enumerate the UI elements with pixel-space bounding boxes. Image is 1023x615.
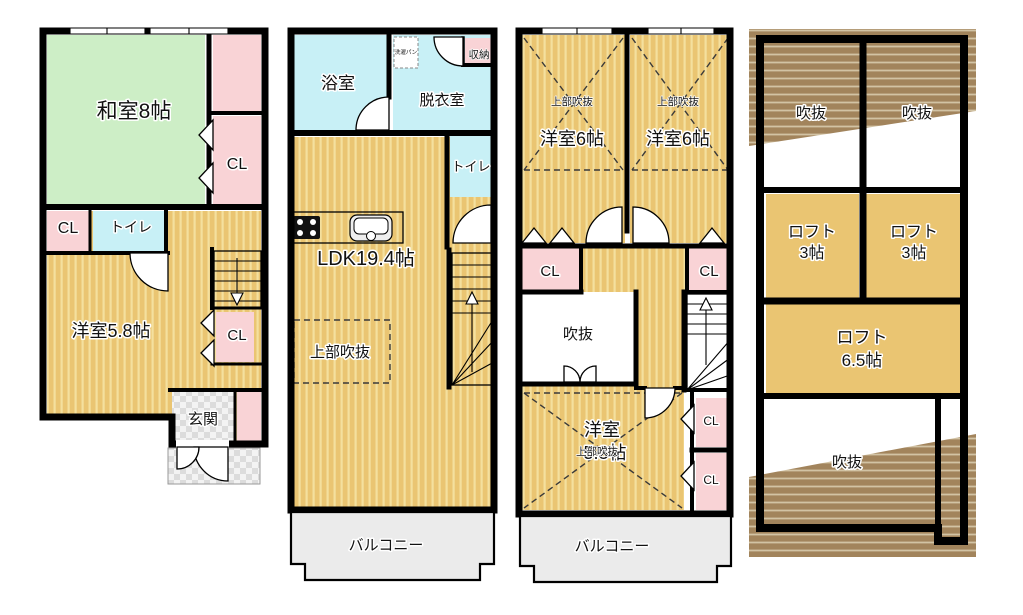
label-open-ceiling-2f: 上部吹抜	[310, 344, 370, 361]
entrance-side-closet	[237, 392, 261, 441]
floor-1-plan: 和室8帖 CL CL トイレ 洋室5.8帖 CL 玄関	[43, 28, 265, 485]
label-open-above-right: 上部吹抜	[657, 95, 699, 108]
loft-room-main	[766, 303, 961, 393]
room-label-loft-left: ロフト	[788, 224, 836, 241]
room-label-toilet-2f: トイレ	[451, 159, 490, 174]
room-label-cl-west-3f: CL	[540, 263, 559, 280]
floorplan-image: 和室8帖 CL CL トイレ 洋室5.8帖 CL 玄関	[0, 0, 1023, 615]
label-void-right: 吹抜	[902, 105, 932, 122]
room-label-loft-left-size: 3帖	[800, 244, 825, 262]
label-open-above-south: 上部吹抜	[576, 445, 618, 458]
balcony-label-2f: バルコニー	[349, 537, 424, 554]
room-label-washitsu: 和室8帖	[97, 100, 172, 123]
closet-north-upper	[213, 35, 261, 111]
loft-plan: 吹抜 吹抜 ロフト 3帖 ロフト 3帖 ロフト 6.5帖 吹抜	[749, 29, 976, 557]
room-label-loft-right: ロフト	[890, 224, 938, 241]
stove-icon	[293, 216, 320, 239]
room-label-cl-west: CL	[58, 220, 79, 237]
floorplan-svg: 和室8帖 CL CL トイレ 洋室5.8帖 CL 玄関	[0, 0, 1023, 615]
balcony-2f: バルコニー	[291, 512, 494, 580]
room-label-cl-south-lower: CL	[703, 473, 719, 487]
room-label-cl-east-3f: CL	[699, 263, 718, 280]
sink-icon	[350, 215, 392, 241]
room-label-loft-right-size: 3帖	[902, 244, 927, 262]
staircase-3f	[687, 294, 730, 390]
label-void-south: 吹抜	[832, 454, 862, 471]
room-label-bedroom-south: 洋室	[584, 420, 620, 440]
room-label-youshitsu: 洋室5.8帖	[71, 321, 150, 341]
floor-2-plan: バルコニー 浴室 洗濯パン 脱衣室 収納 トイレ LDK19.4帖 上部吹抜	[289, 31, 494, 580]
room-label-loft-main-size: 6.5帖	[842, 351, 883, 370]
room-label-bathroom: 浴室	[321, 74, 355, 93]
room-label-cl-south-upper: CL	[703, 414, 719, 428]
label-open-above-left: 上部吹抜	[551, 95, 593, 108]
balcony-label-3f: バルコニー	[575, 538, 650, 555]
room-label-genkan: 玄関	[188, 411, 218, 428]
room-label-cl-center: CL	[227, 327, 246, 344]
label-washer-pan: 洗濯パン	[395, 48, 418, 56]
room-label-bedroom-left: 洋室6帖	[540, 129, 604, 149]
room-label-dressing: 脱衣室	[419, 92, 464, 109]
room-label-loft-main: ロフト	[837, 328, 888, 347]
floor-3-plan: バルコニー 上部吹抜 洋室6帖 上部吹抜 洋室6帖 CL CL 吹抜 洋室 5.…	[519, 28, 731, 583]
balcony-3f: バルコニー	[520, 516, 731, 582]
room-label-toilet-1f: トイレ	[110, 219, 152, 235]
room-label-void-3f: 吹抜	[563, 326, 593, 343]
room-label-ldk: LDK19.4帖	[317, 247, 415, 270]
room-label-storage: 収納	[469, 48, 490, 61]
label-void-left: 吹抜	[796, 105, 826, 122]
room-label-bedroom-right: 洋室6帖	[646, 129, 710, 149]
room-label-cl-north: CL	[227, 156, 248, 173]
